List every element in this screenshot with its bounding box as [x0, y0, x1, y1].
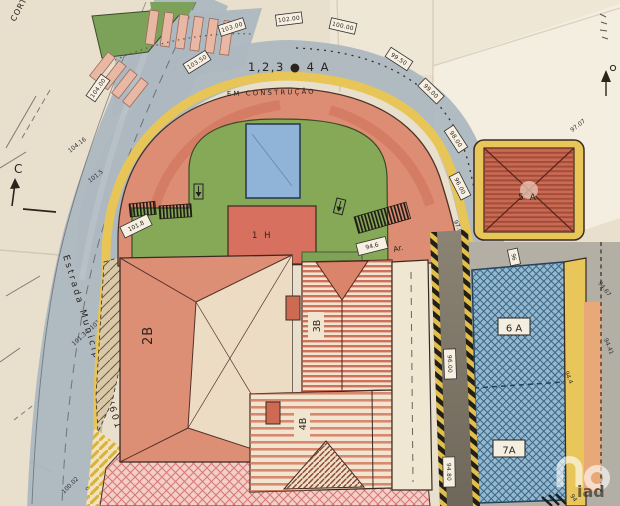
elevation-value: 96.00 — [446, 355, 453, 373]
stairs-left-2 — [159, 204, 192, 219]
elevation-marker: 96.00 — [443, 349, 456, 379]
building-3b: 3B — [302, 252, 392, 392]
elevation-marker: 94.80 — [443, 457, 456, 487]
building-3b-label: 3B — [312, 320, 323, 333]
site-plan-drawing: CORTE C Estrada Municipal 600/601 104.16… — [0, 0, 620, 506]
site-plan-scan: CORTE C Estrada Municipal 600/601 104.16… — [0, 0, 620, 506]
watermark-text: iad — [577, 482, 605, 501]
section-marker-letter: C — [14, 162, 22, 176]
service-band-area — [392, 260, 432, 490]
building-2b-label: 2B — [141, 326, 156, 345]
building-4b-label: 4B — [298, 418, 309, 431]
building-1h-label: 1 H — [252, 231, 273, 241]
parcel-label-text: 6 A — [506, 324, 523, 335]
chimney — [266, 402, 280, 424]
building-5a-label: 5 A — [518, 193, 537, 203]
parcel-label-text: 7A — [502, 446, 515, 457]
elevation-value: 94.80 — [445, 463, 451, 481]
lots-label: 1,2,3 ● 4 A — [248, 60, 330, 74]
service-band — [392, 260, 432, 490]
building-4b-label-box: 4B — [294, 410, 310, 438]
orange-strip — [584, 302, 601, 492]
chimney — [286, 296, 300, 320]
parcel-7a-label: 7A — [493, 440, 525, 457]
parcel-6a-label: 6 A — [498, 318, 530, 335]
building-4b: 4B — [250, 390, 392, 492]
stairs-left-1 — [129, 201, 156, 217]
building-3b-label-box: 3B — [308, 312, 324, 340]
